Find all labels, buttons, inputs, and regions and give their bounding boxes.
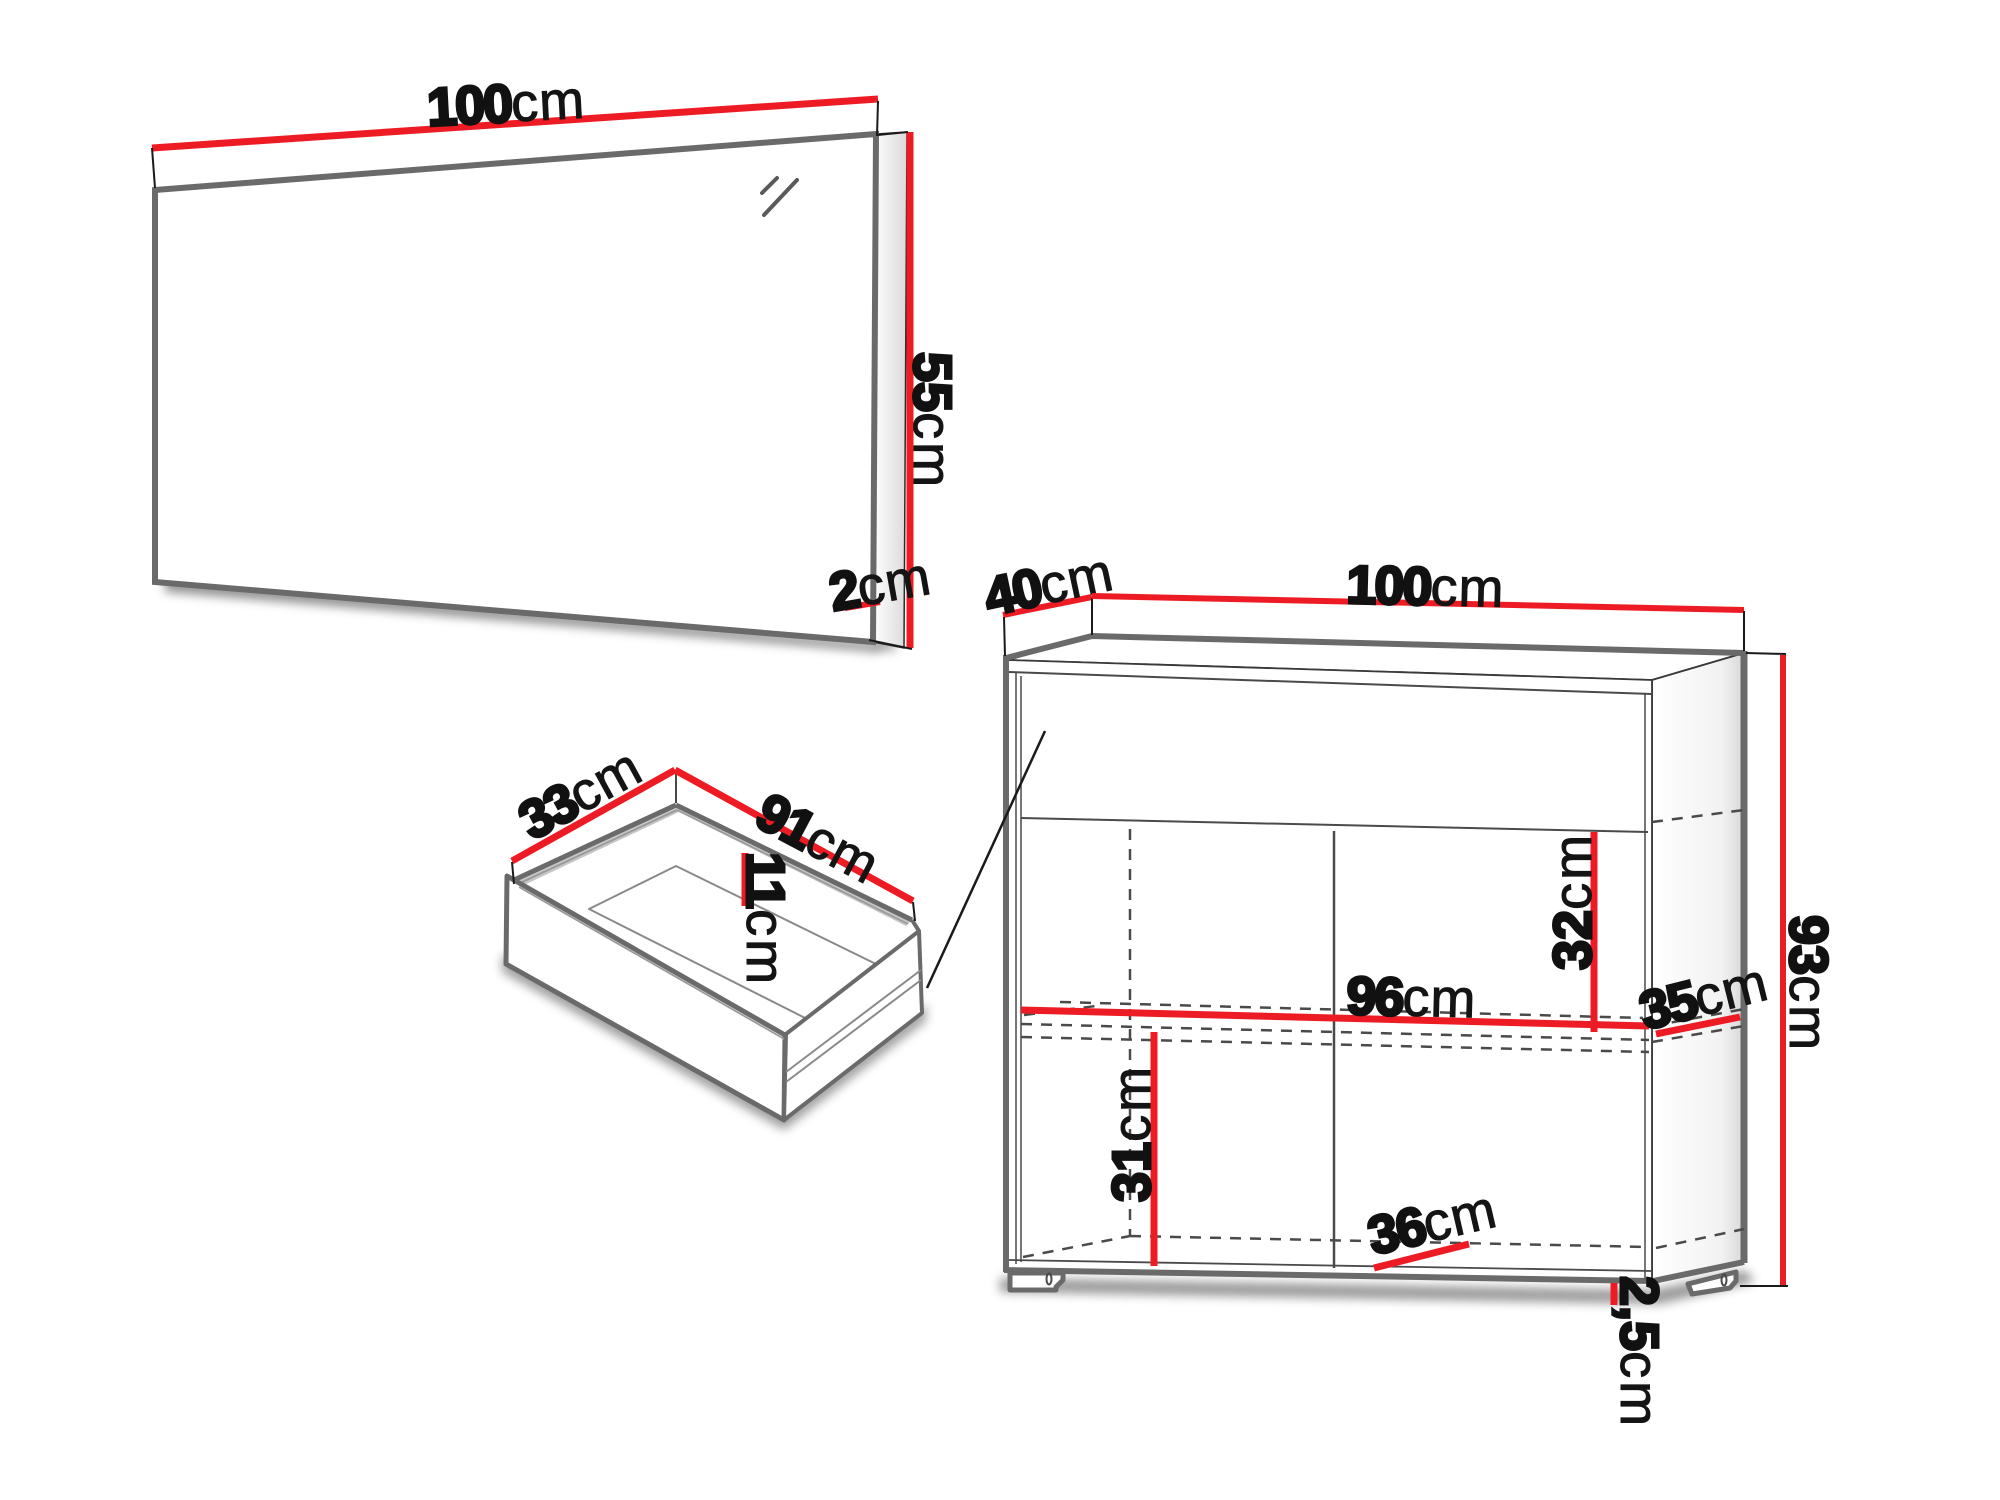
svg-text:11cm: 11cm: [735, 852, 795, 987]
svg-text:93cm: 93cm: [1778, 915, 1838, 1053]
svg-text:55cm: 55cm: [902, 352, 962, 490]
svg-text:2,5cm: 2,5cm: [1609, 1276, 1669, 1429]
svg-text:100cm: 100cm: [1346, 555, 1506, 619]
svg-text:32cm: 32cm: [1543, 832, 1603, 970]
svg-text:96cm: 96cm: [1346, 966, 1478, 1029]
svg-text:31cm: 31cm: [1102, 1064, 1162, 1202]
svg-text:100cm: 100cm: [425, 70, 586, 138]
